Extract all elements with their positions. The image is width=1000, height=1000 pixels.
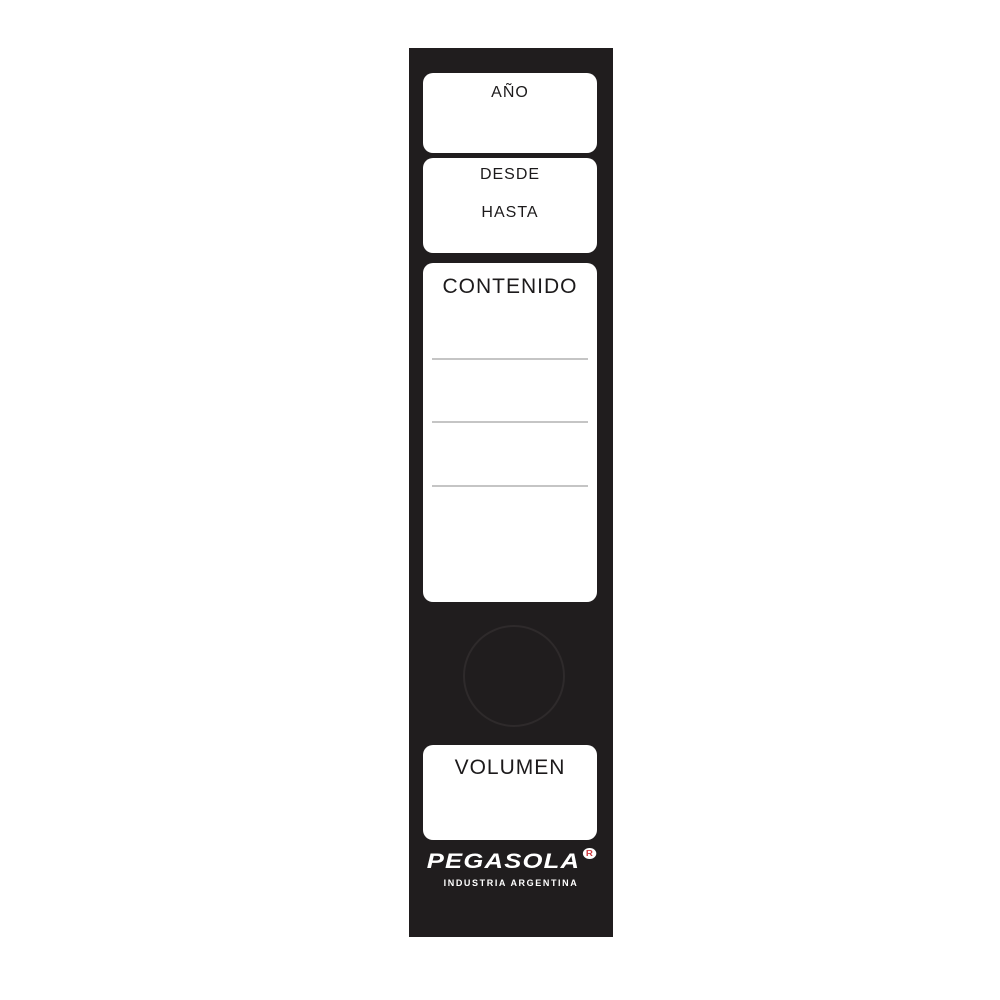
- registered-trademark-icon: R: [582, 848, 595, 859]
- volume-field-box[interactable]: VOLUMEN: [423, 745, 597, 840]
- brand-name-row: PEGASOLAR: [426, 850, 595, 874]
- to-label: HASTA: [423, 204, 597, 222]
- date-range-field-box[interactable]: DESDE HASTA: [423, 158, 597, 253]
- content-field-box[interactable]: CONTENIDO: [423, 263, 597, 602]
- finger-hole-circle: [463, 625, 565, 727]
- ruled-line: [432, 421, 588, 423]
- year-label: AÑO: [423, 84, 597, 102]
- content-label: CONTENIDO: [423, 275, 597, 299]
- label-sheet: AÑO DESDE HASTA CONTENIDO VOLUMEN PEGASO…: [0, 0, 1000, 1000]
- year-field-box[interactable]: AÑO: [423, 73, 597, 153]
- ruled-line: [432, 358, 588, 360]
- from-label: DESDE: [423, 166, 597, 184]
- brand-logo: PEGASOLAR INDUSTRIA ARGENTINA: [409, 850, 613, 888]
- binder-spine-label: AÑO DESDE HASTA CONTENIDO VOLUMEN PEGASO…: [409, 48, 613, 937]
- ruled-line: [432, 485, 588, 487]
- brand-tagline: INDUSTRIA ARGENTINA: [409, 878, 613, 888]
- volume-label: VOLUMEN: [423, 756, 597, 780]
- brand-name: PEGASOLA: [426, 850, 580, 873]
